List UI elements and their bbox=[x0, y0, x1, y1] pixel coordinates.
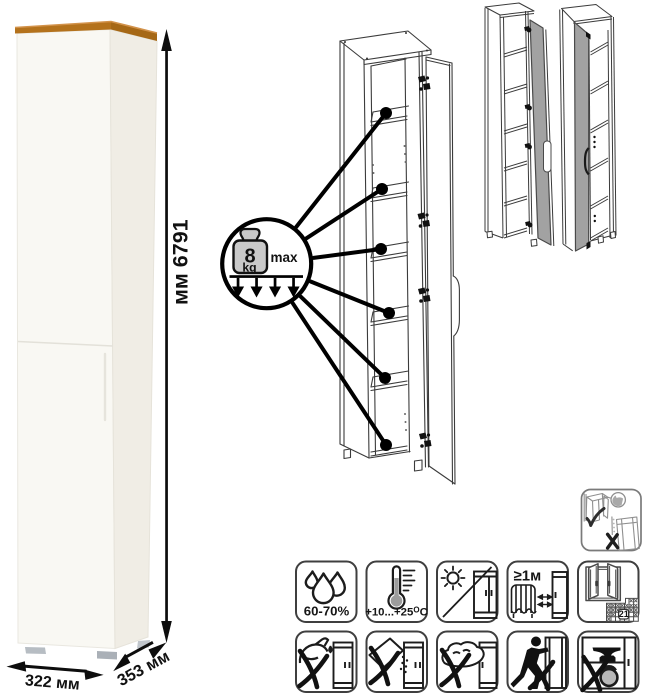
svg-text:мм 6791: мм 6791 bbox=[169, 219, 193, 305]
svg-text:60-70%: 60-70% bbox=[304, 604, 350, 619]
svg-text:kg: kg bbox=[242, 261, 256, 275]
svg-text:≥1м: ≥1м bbox=[514, 568, 542, 585]
svg-text:21: 21 bbox=[619, 609, 629, 619]
svg-text:max: max bbox=[271, 250, 299, 265]
